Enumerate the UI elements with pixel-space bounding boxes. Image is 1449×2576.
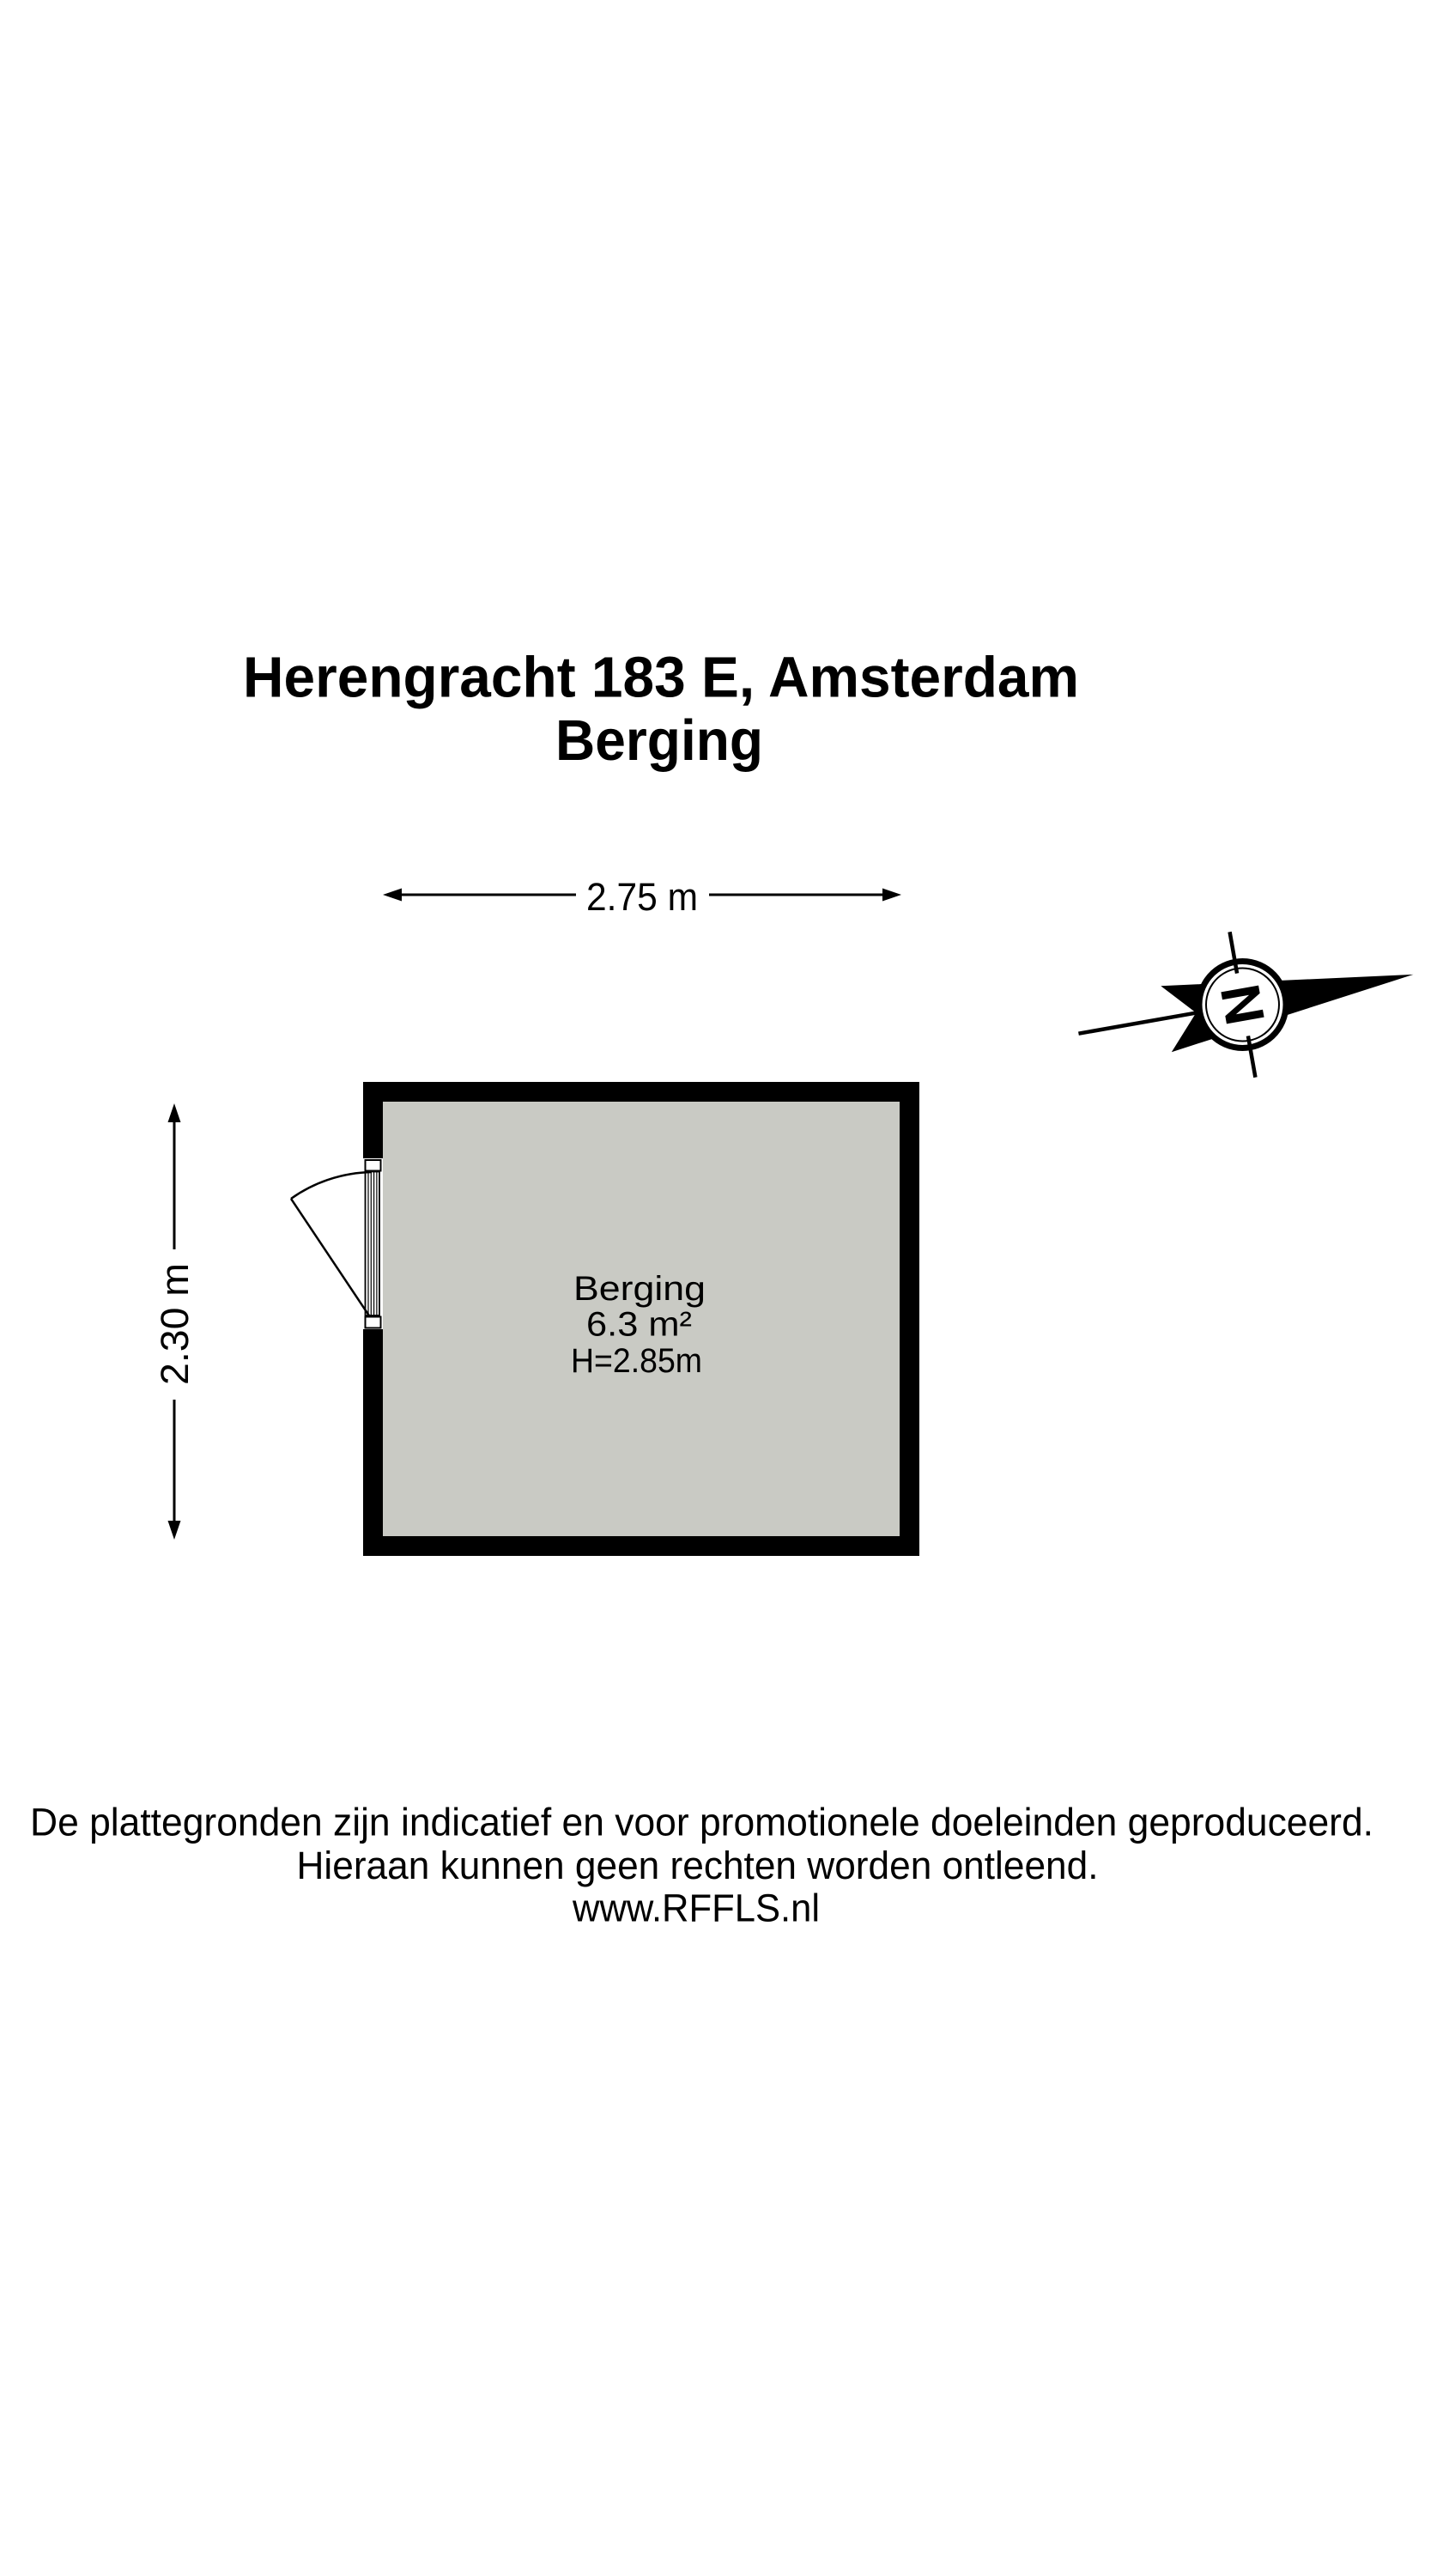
svg-text:2.30 m: 2.30 m (153, 1263, 197, 1385)
svg-text:Herengracht 183 E, Amsterdam: Herengracht 183 E, Amsterdam (243, 646, 1079, 710)
svg-text:H=2.85m: H=2.85m (571, 1342, 702, 1380)
svg-text:www.RFFLS.nl: www.RFFLS.nl (572, 1886, 820, 1930)
svg-text:De plattegronden zijn indicati: De plattegronden zijn indicatief en voor… (30, 1801, 1373, 1844)
svg-text:Berging: Berging (555, 708, 763, 773)
svg-text:6.3 m²: 6.3 m² (586, 1306, 692, 1344)
svg-text:Hieraan kunnen geen rechten wo: Hieraan kunnen geen rechten worden ontle… (297, 1844, 1099, 1887)
svg-text:2.75 m: 2.75 m (586, 875, 698, 919)
svg-text:Berging: Berging (573, 1270, 706, 1308)
